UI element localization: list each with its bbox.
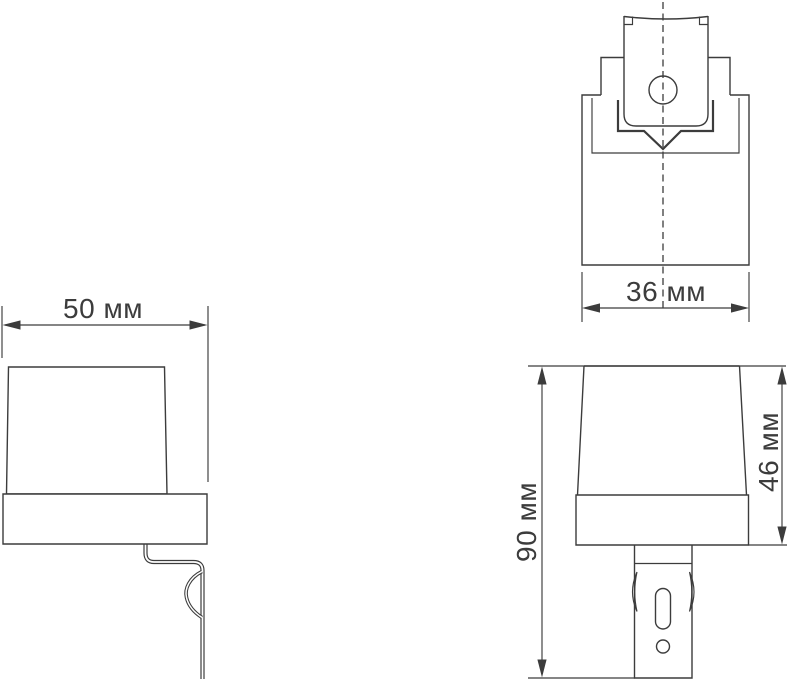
side-body — [7, 367, 168, 494]
top-step-left — [601, 58, 624, 96]
dimension-drawing: 36 мм 50 мм — [0, 0, 789, 682]
dim-label-90: 90 мм — [511, 482, 542, 562]
side-view: 50 мм — [2, 293, 208, 679]
top-view: 36 мм — [582, 2, 749, 322]
top-recess-inner — [618, 100, 713, 149]
dim-arrow-90-bottom — [537, 660, 546, 678]
dim-arrow-46-top — [777, 367, 786, 385]
dim-arrow-90-top — [537, 367, 546, 385]
side-base — [3, 494, 207, 544]
dim-arrow-50-right — [190, 320, 208, 329]
bracket-clip-right — [690, 572, 695, 612]
dim-label-36: 36 мм — [626, 276, 706, 307]
side-mounting-clip — [146, 544, 203, 679]
sensor-cylinder-outline — [624, 16, 708, 126]
front-base — [576, 495, 749, 545]
top-body-outline — [582, 95, 749, 265]
drawing-svg: 36 мм 50 мм — [0, 0, 789, 682]
dim-label-50: 50 мм — [63, 293, 143, 324]
sensor-top-edge — [624, 17, 708, 20]
dim-label-46: 46 мм — [753, 412, 784, 492]
front-bracket — [633, 545, 695, 678]
dim-arrow-36-right — [731, 303, 749, 312]
front-body — [578, 366, 747, 495]
front-view: 90 мм 46 мм — [511, 366, 787, 678]
top-step-right — [709, 58, 731, 96]
bracket-hole — [657, 640, 670, 653]
dim-arrow-36-left — [582, 303, 600, 312]
dim-arrow-46-bottom — [777, 527, 786, 545]
bracket-clip-left — [633, 572, 638, 612]
dim-arrow-50-left — [3, 320, 21, 329]
bracket-slot — [656, 589, 671, 630]
